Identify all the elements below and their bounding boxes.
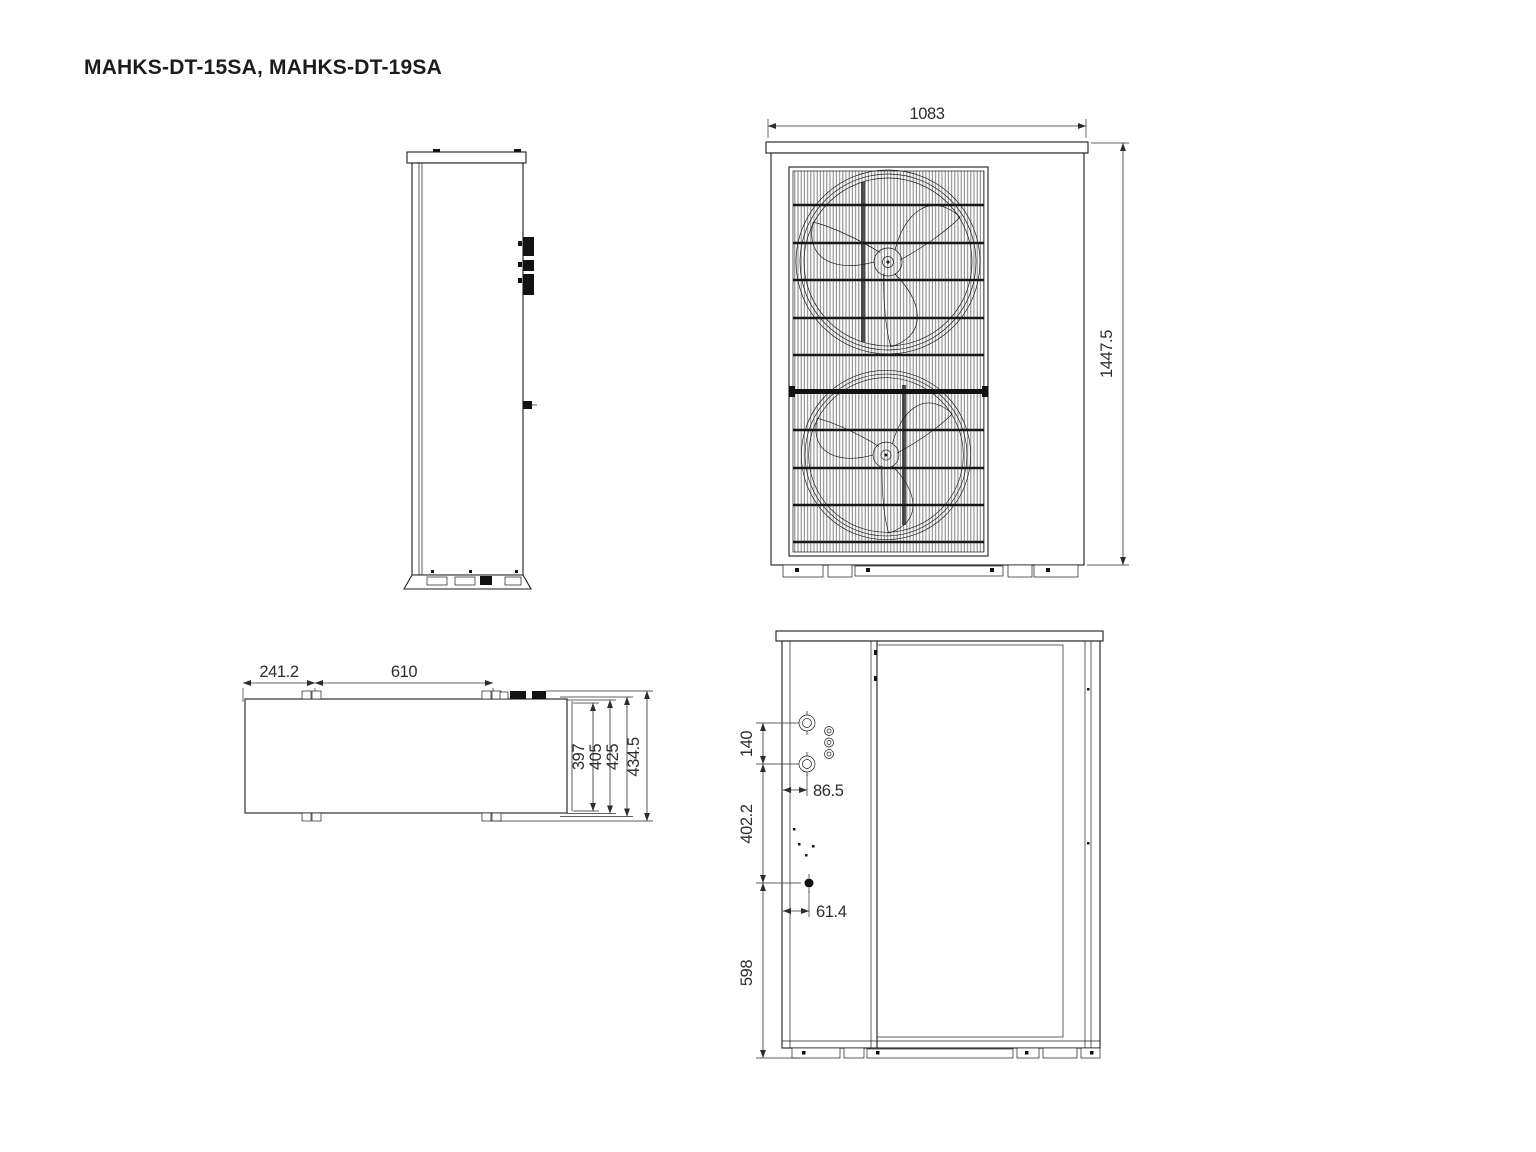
- dim-depth-434-label: 434.5: [625, 737, 643, 777]
- dim-depth-425-label: 425: [604, 744, 622, 771]
- dim-top-feet: 241.2 610: [243, 663, 493, 702]
- side-pipe-fitting: [523, 401, 537, 409]
- dim-front-height: 1447.5: [1087, 143, 1129, 565]
- dim-front-width: 1083: [768, 105, 1086, 138]
- front-view: 1083: [766, 105, 1129, 577]
- drawing-page: MAHKS-DT-15SA, MAHKS-DT-19SA: [0, 0, 1536, 1152]
- dim-mid-span-label: 402.2: [738, 804, 756, 844]
- back-feet: [792, 1048, 1100, 1058]
- dim-base-span-label: 598: [738, 960, 756, 987]
- dim-foot-pitch-label: 610: [391, 663, 418, 681]
- dim-front-height-label: 1447.5: [1098, 330, 1116, 378]
- dim-depth-397-label: 397: [570, 744, 588, 771]
- dim-depth-405-label: 405: [587, 744, 605, 771]
- technical-drawing: 1083: [0, 0, 1536, 1152]
- dim-foot-offset-label: 241.2: [259, 663, 299, 681]
- top-view: 241.2 610: [243, 663, 653, 821]
- dim-drain-inset-label: 61.4: [816, 903, 847, 921]
- dim-pipe-pitch-label: 140: [738, 731, 756, 758]
- side-view: [404, 149, 537, 589]
- dim-pipe-inset-label: 86.5: [813, 782, 844, 800]
- fan-grille: [789, 167, 988, 556]
- dim-front-width-label: 1083: [909, 105, 944, 123]
- back-view: 140 402.2 598 86.5 61.4: [738, 631, 1103, 1058]
- front-feet: [783, 565, 1078, 577]
